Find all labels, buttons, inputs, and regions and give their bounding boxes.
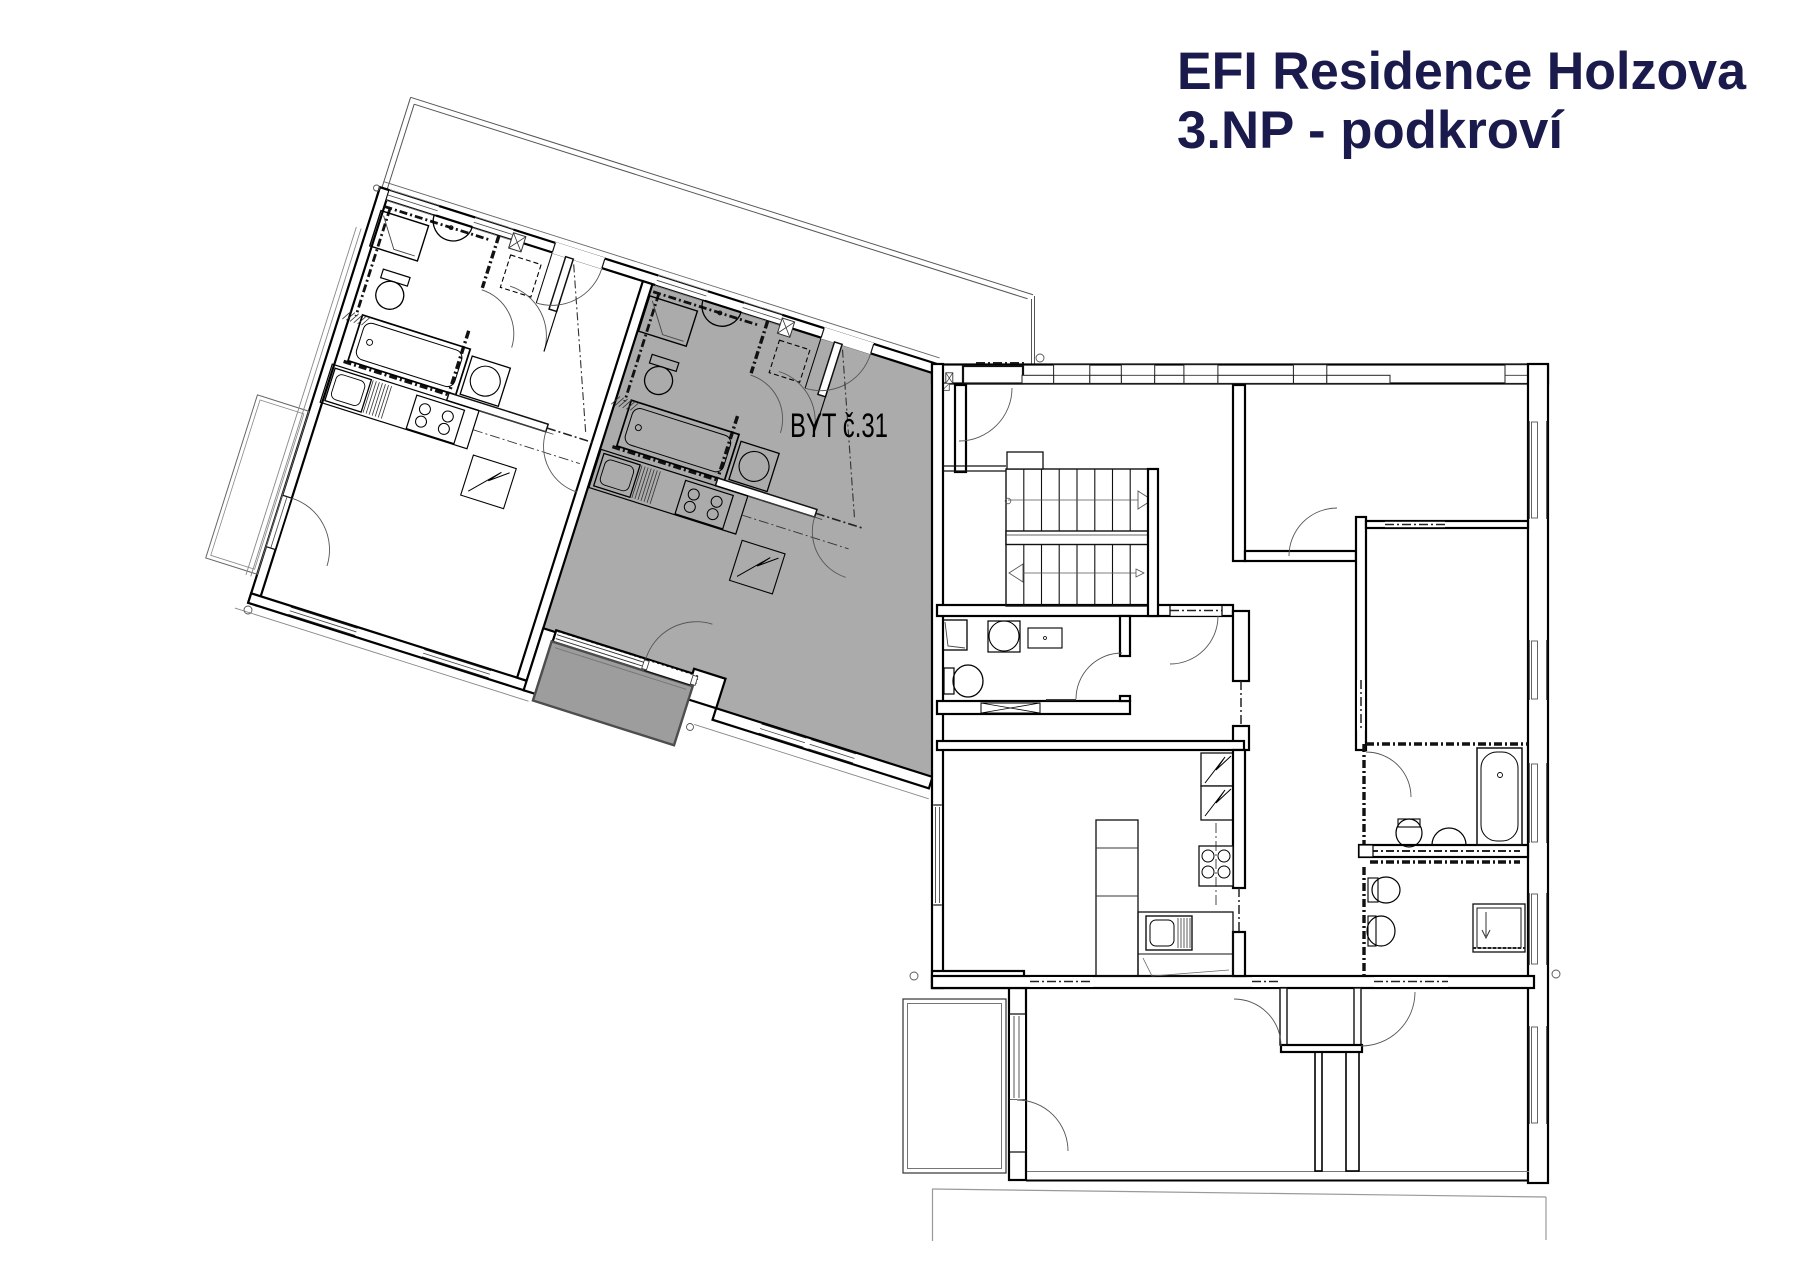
svg-text:EFI Residence Holzova: EFI Residence Holzova [1177, 42, 1747, 101]
svg-text:3.NP - podkroví: 3.NP - podkroví [1177, 101, 1565, 160]
svg-text:BYT č.31: BYT č.31 [790, 407, 888, 445]
